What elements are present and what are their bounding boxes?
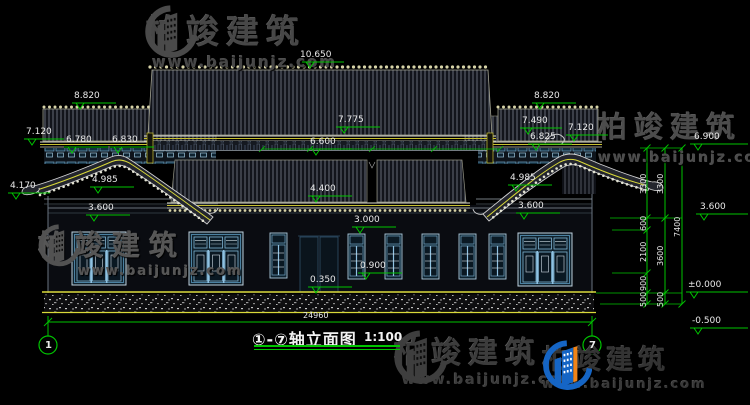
level-flag-triangle-icon [76,103,84,109]
level-flag-triangle-icon [520,213,528,219]
elevation-mark-label: 3.600 [700,203,726,212]
chain-dimension-label: 24960 [303,312,328,320]
elevation-mark-label: 4.170 [10,182,36,191]
drawing-scale: 1:100 [364,330,402,344]
title-underline [254,349,400,350]
elevation-mark-label: 6.825 [530,133,556,142]
level-flag-triangle-icon [532,144,540,150]
level-flag-triangle-icon [312,149,320,155]
chain-dimension-label: 900 [640,276,648,291]
level-flag-triangle-icon [312,196,320,202]
elevation-mark-label: 7.490 [522,117,548,126]
elevation-mark-label: 7.775 [338,116,364,125]
elevation-mark-label: 8.820 [534,92,560,101]
chain-dimension-label: 3600 [657,246,665,266]
level-flag-triangle-icon [306,62,314,68]
elevation-mark-label: 3.600 [518,202,544,211]
elevation-mark-label: 0.350 [310,276,336,285]
elevation-mark-label: 6.830 [112,136,138,145]
level-flag-triangle-icon [68,147,76,153]
dimension-labels-layer: ①-⑦轴立面图 1:100 1 7 10.6508.8207.1206.7806… [0,0,750,405]
level-flag-triangle-icon [690,292,698,298]
elevation-mark-label: 3.600 [88,204,114,213]
elevation-mark-label: 4.400 [310,185,336,194]
chain-dimension-label: 3300 [640,174,648,194]
elevation-mark-label: 7.120 [568,124,594,133]
level-flag-triangle-icon [114,147,122,153]
elevation-mark-label: 7.120 [26,128,52,137]
elevation-mark-label: 6.900 [694,133,720,142]
elevation-mark-label: 4.985 [92,176,118,185]
elevation-mark-label: 8.820 [74,92,100,101]
axis-bubble-7-label: 7 [589,340,596,351]
chain-dimension-label: 2100 [640,242,648,262]
chain-dimension-label: 500 [657,292,665,307]
chain-dimension-label: 7400 [674,217,682,237]
level-flag-triangle-icon [340,127,348,133]
elevation-mark-label: 0.900 [360,262,386,271]
chain-dimension-label: 500 [640,292,648,307]
level-flag-triangle-icon [94,187,102,193]
level-flag-triangle-icon [362,273,370,279]
level-flag-triangle-icon [28,139,36,145]
level-flag-triangle-icon [512,185,520,191]
elevation-mark-label: -0.500 [692,317,721,326]
cad-elevation-drawing: 柏竣建筑 www.baijunjz.com 柏竣建筑 www.baijunjz.… [0,0,750,405]
elevation-mark-label: 6.600 [310,138,336,147]
title-underline [254,345,400,347]
axis-bubble-1-label: 1 [45,340,52,351]
level-flag-triangle-icon [312,287,320,293]
elevation-mark-label: ±0.000 [688,281,721,290]
elevation-mark-label: 10.650 [300,51,332,60]
level-flag-triangle-icon [694,328,702,334]
level-flag-triangle-icon [12,193,20,199]
level-flag-triangle-icon [356,227,364,233]
level-flag-triangle-icon [90,215,98,221]
elevation-mark-label: 6.780 [66,136,92,145]
chain-dimension-label: 600 [640,216,648,231]
elevation-mark-label: 3.000 [354,216,380,225]
level-flag-triangle-icon [700,214,708,220]
level-flag-triangle-icon [570,135,578,141]
level-flag-triangle-icon [694,144,702,150]
level-flag-triangle-icon [536,103,544,109]
chain-dimension-label: 3300 [657,174,665,194]
elevation-mark-label: 4.985 [510,174,536,183]
